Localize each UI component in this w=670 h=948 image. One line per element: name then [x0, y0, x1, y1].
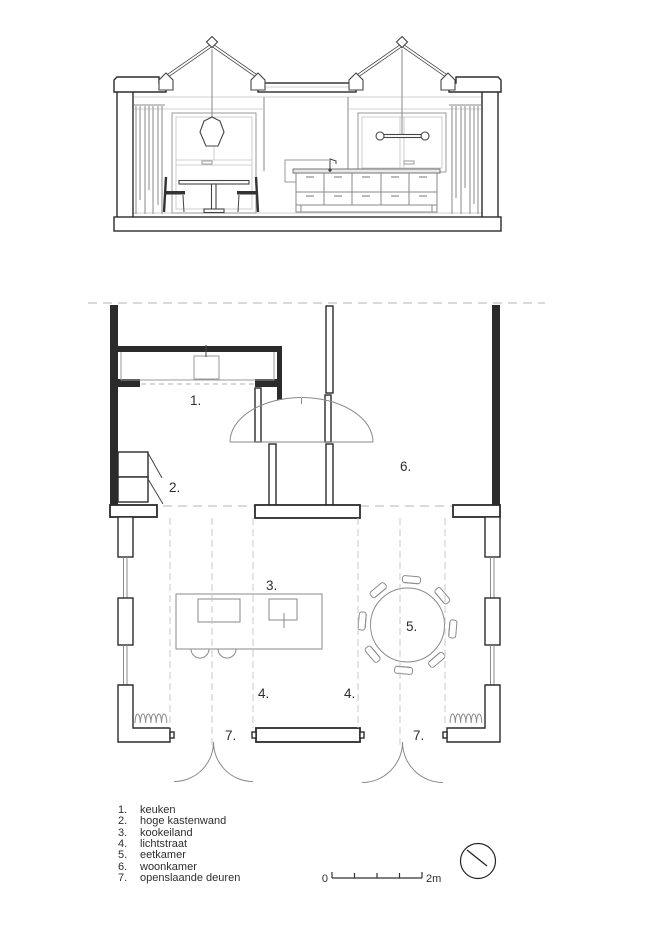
scale-bar: 0 2m — [322, 872, 441, 885]
legend-num: 2. — [118, 815, 127, 827]
scale-max: 2m — [426, 873, 441, 885]
legend-label: hoge kastenwand — [140, 815, 226, 827]
french-doors-left — [174, 742, 253, 782]
plan-label-kookeiland: 3. — [266, 578, 277, 593]
french-doors-right — [362, 742, 443, 783]
scale-zero: 0 — [322, 873, 328, 885]
kitchen-island-plan — [176, 594, 322, 658]
plan-label-lichtstraat-left: 4. — [258, 686, 269, 701]
linear-pendant — [376, 49, 429, 140]
legend: 1. keuken 2. hoge kastenwand 3. kookeila… — [118, 804, 240, 884]
skylight-gables — [159, 37, 455, 91]
plan-label-woonkamer: 6. — [400, 459, 411, 474]
plan-junction-walls — [110, 505, 500, 518]
north-arrow — [461, 844, 496, 879]
floor-plan: 1. 2. 3. 4. 4. 5. 6. 7. 7. — [88, 303, 545, 783]
section-curtain-left — [134, 105, 165, 214]
drawing-svg: 1. 2. 3. 4. 4. 5. 6. 7. 7. 1. keuken 2. … — [0, 0, 670, 948]
plan-label-lichtstraat-right: 4. — [344, 686, 355, 701]
radiator-right — [450, 714, 482, 723]
pendant-lamp — [200, 49, 224, 146]
section-curtain-right — [449, 105, 481, 214]
hall-double-doors — [230, 398, 373, 443]
legend-label: eetkamer — [140, 849, 186, 861]
legend-num: 5. — [118, 849, 127, 861]
tall-cabinets-plan — [118, 452, 163, 504]
plan-label-deuren-right: 7. — [413, 728, 424, 743]
section-kitchen-island — [285, 159, 440, 212]
plan-walls-upper — [110, 305, 500, 507]
plan-label-kastenwand: 2. — [169, 480, 180, 495]
legend-num: 7. — [118, 872, 127, 884]
plan-label-eetkamer: 5. — [406, 619, 417, 634]
plan-walls-left-side — [118, 517, 170, 742]
plan-label-deuren-left: 7. — [225, 728, 236, 743]
section-drawing — [114, 37, 501, 232]
radiator-left — [135, 714, 167, 723]
legend-label: openslaande deuren — [140, 872, 240, 884]
plan-label-keuken: 1. — [190, 393, 201, 408]
architectural-sheet: 1. 2. 3. 4. 4. 5. 6. 7. 7. 1. keuken 2. … — [0, 0, 670, 948]
